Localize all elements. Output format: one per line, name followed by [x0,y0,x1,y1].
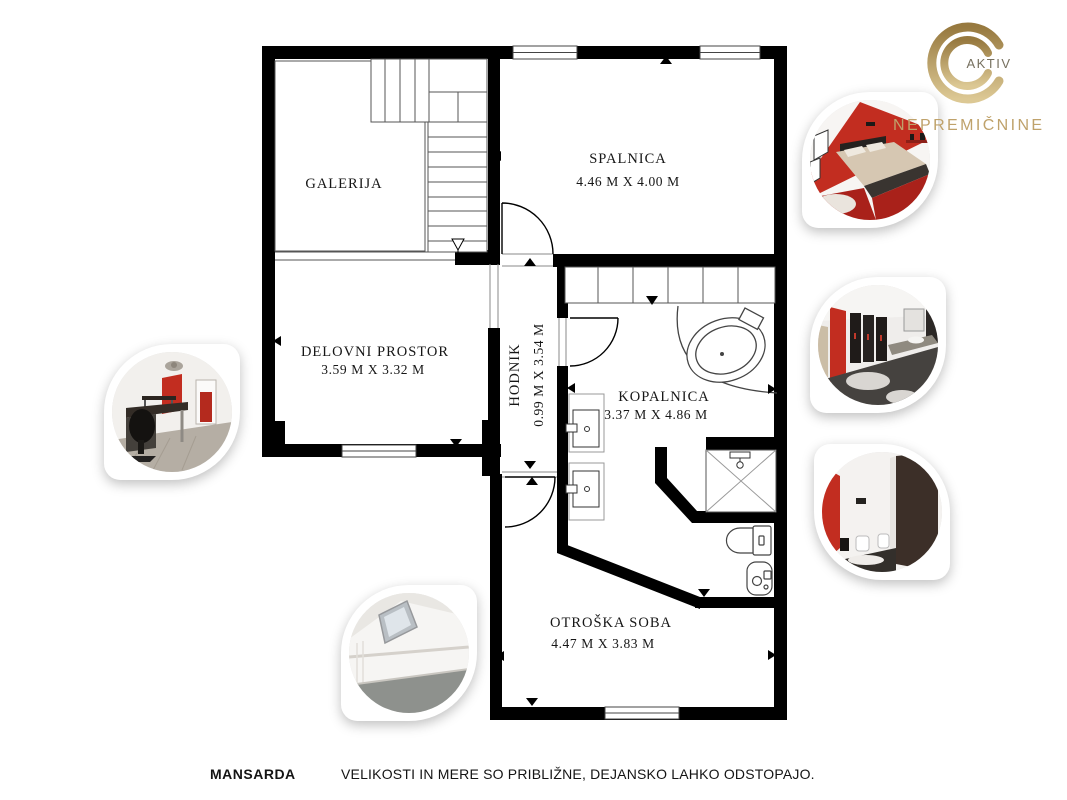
bathroom-image [818,285,938,405]
room-label-galerija: GALERIJA [305,176,382,192]
stairs-icon [371,59,487,258]
wc-image [822,452,942,572]
room-label-otroska-soba: OTROŠKA SOBA [550,614,672,631]
room-dims-otroska-soba: 4.47 M X 3.83 M [551,636,655,651]
room-label-hodnik: HODNIK [507,343,523,406]
photo-wc [814,444,950,580]
interior-lines [275,61,566,477]
attic-room-image [349,593,469,713]
wardrobe-icon [565,267,775,305]
room-dims-spalnica: 4.46 M X 4.00 M [576,174,680,189]
brand-name: AKTIV [966,56,1011,71]
brand-monogram-icon: AKTIV [915,12,1025,114]
brand-subtitle: NEPREMIČNINE [893,117,1044,135]
toilet-icon [726,526,771,555]
photo-office [104,344,240,480]
photo-bathroom [810,277,946,413]
room-dims-delovni-prostor: 3.59 M X 3.32 M [321,362,425,377]
photo-attic-room [341,585,477,721]
bathtub-icon [677,306,777,393]
bidet-icon [747,562,772,595]
room-dims-hodnik: 0.99 M X 3.54 M [531,323,546,427]
walls [262,46,787,720]
room-label-delovni-prostor: DELOVNI PROSTOR [301,344,449,360]
office-image [112,352,232,472]
room-label-kopalnica: KOPALNICA [618,389,709,405]
room-dims-kopalnica: 3.37 M X 4.86 M [604,407,708,422]
room-label-spalnica: SPALNICA [589,151,667,167]
sink-icons [566,394,604,520]
page: GALERIJA SPALNICA 4.46 M X 4.00 M DELOVN… [0,0,1067,800]
brand-logo: AKTIV [915,12,1025,114]
shower-icon [706,450,776,512]
